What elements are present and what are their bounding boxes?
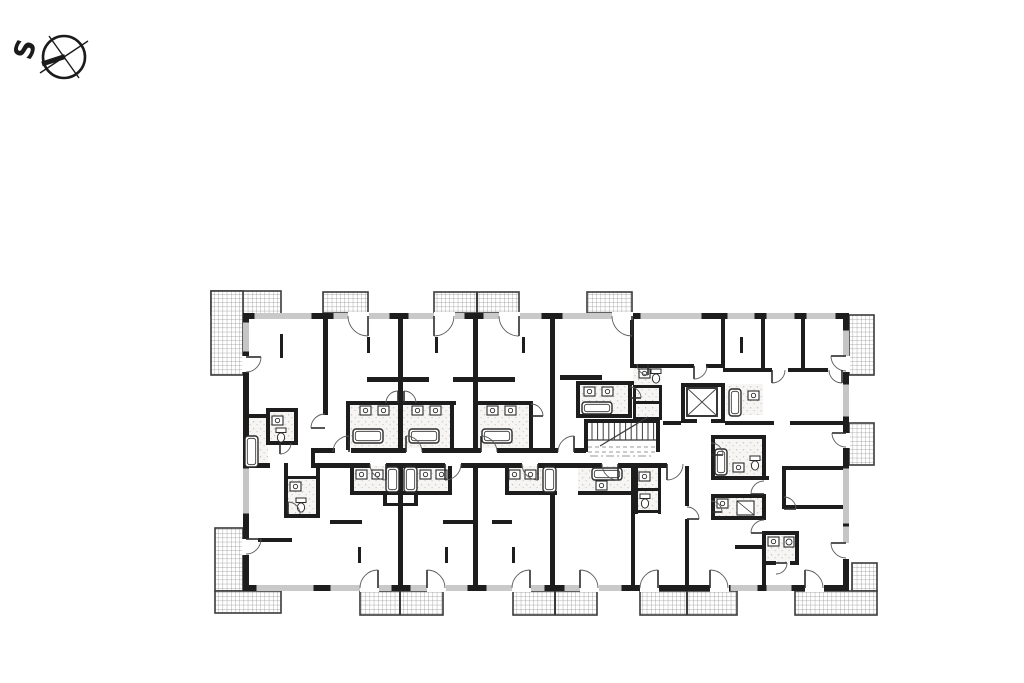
toilet	[276, 428, 286, 442]
sink	[596, 481, 607, 490]
door-swing	[772, 370, 785, 383]
wall	[422, 448, 481, 453]
sink	[748, 391, 759, 400]
wall	[294, 408, 298, 445]
wall	[725, 421, 774, 425]
wall	[266, 408, 298, 412]
wall	[316, 466, 320, 516]
door-swing	[667, 464, 683, 480]
door-swing	[829, 370, 842, 383]
balcony	[849, 423, 874, 465]
window	[728, 585, 760, 591]
sink	[509, 470, 520, 479]
bathtub	[386, 467, 399, 492]
sink	[584, 387, 595, 396]
wall	[721, 319, 725, 368]
wall	[721, 383, 725, 423]
sink	[360, 406, 371, 415]
wall	[505, 466, 509, 494]
bathtub	[404, 467, 417, 492]
shower	[737, 501, 754, 515]
wall	[473, 319, 478, 450]
window	[638, 313, 704, 319]
window	[243, 320, 249, 354]
bathtub	[482, 429, 512, 443]
wall	[711, 516, 766, 520]
window	[254, 585, 316, 591]
wall	[795, 531, 799, 565]
wall	[350, 466, 354, 494]
wall	[313, 463, 370, 468]
sink	[430, 406, 441, 415]
wall	[383, 491, 387, 505]
wall	[681, 383, 725, 387]
sink	[505, 406, 516, 415]
window	[764, 313, 797, 319]
wall	[461, 463, 522, 468]
door-swing	[558, 436, 574, 452]
bathtub	[543, 467, 556, 492]
balcony	[852, 563, 877, 591]
wall	[762, 531, 799, 535]
wall	[258, 538, 292, 542]
floor-plan-svg	[0, 0, 1024, 683]
wall	[659, 385, 662, 420]
sink	[639, 472, 650, 481]
wall	[762, 494, 766, 518]
door-swing	[311, 414, 325, 428]
floor-plan: S	[0, 0, 1024, 683]
sink	[602, 387, 613, 396]
bathtub	[353, 429, 383, 443]
bathtub	[729, 389, 741, 416]
wall	[383, 503, 418, 506]
door-swing	[687, 507, 699, 519]
sink	[525, 470, 536, 479]
elevator	[687, 388, 717, 416]
wall	[323, 319, 328, 415]
wall	[681, 383, 685, 423]
bathtub	[715, 449, 727, 475]
compass-icon	[40, 36, 88, 78]
sink	[356, 470, 367, 479]
window	[804, 313, 838, 319]
wall	[735, 545, 765, 549]
bathtub	[245, 436, 258, 467]
wall	[576, 381, 580, 418]
toilet	[640, 494, 650, 508]
wall	[284, 514, 320, 518]
wall	[351, 448, 406, 453]
wall	[346, 401, 404, 405]
wall	[762, 437, 766, 480]
sink	[487, 406, 498, 415]
sink	[290, 482, 301, 491]
wall	[414, 491, 418, 505]
washing-machine	[784, 537, 794, 547]
wall	[788, 368, 828, 372]
wall	[711, 476, 769, 480]
balcony	[215, 528, 243, 591]
wall	[706, 364, 725, 368]
window	[843, 382, 849, 419]
window	[725, 313, 757, 319]
wall	[284, 476, 320, 479]
balcony	[323, 292, 368, 313]
wall	[631, 466, 635, 585]
window	[843, 466, 849, 526]
bathtub	[409, 429, 439, 443]
toilet	[750, 456, 760, 470]
wall	[497, 448, 558, 453]
wall	[584, 419, 660, 423]
wall	[443, 520, 478, 524]
sink	[733, 463, 744, 472]
wall	[400, 401, 456, 405]
door-swing	[694, 366, 707, 379]
wall	[685, 466, 689, 506]
window	[243, 466, 249, 516]
balcony	[211, 291, 243, 375]
wall	[630, 364, 694, 368]
wall	[801, 319, 805, 372]
wall	[633, 385, 636, 420]
wall	[475, 401, 533, 405]
window	[252, 313, 314, 319]
wall	[367, 377, 429, 382]
wall	[723, 368, 772, 372]
wall	[450, 401, 454, 450]
sink	[768, 537, 779, 546]
wall	[782, 466, 786, 509]
window	[764, 585, 794, 591]
wall	[656, 419, 660, 452]
door-swing	[776, 563, 787, 574]
wall	[576, 381, 634, 385]
balcony	[795, 591, 877, 615]
wall	[633, 401, 662, 404]
wall	[633, 385, 662, 388]
wall	[663, 421, 681, 425]
balcony	[215, 591, 281, 613]
wall	[330, 520, 362, 524]
balcony	[849, 315, 874, 375]
wall	[578, 491, 632, 495]
wall	[313, 448, 335, 453]
wall	[574, 448, 586, 453]
bathtub	[582, 402, 612, 414]
wall	[635, 488, 661, 491]
balcony	[360, 591, 443, 615]
wall	[584, 419, 588, 452]
door-swing	[751, 481, 764, 494]
sink	[420, 470, 431, 479]
wall	[266, 408, 270, 445]
wall	[529, 401, 533, 450]
sink	[272, 416, 283, 425]
toilet	[651, 369, 661, 383]
toilet	[296, 498, 306, 512]
wall	[453, 377, 515, 382]
wall	[790, 421, 847, 425]
wall	[635, 510, 661, 513]
wall	[560, 375, 602, 380]
wall	[473, 466, 478, 585]
sink	[378, 406, 389, 415]
wall	[550, 319, 555, 450]
wall	[398, 319, 403, 450]
balcony	[587, 292, 632, 313]
wall	[784, 466, 844, 470]
wall	[762, 533, 766, 591]
wall	[492, 520, 512, 524]
wall	[761, 319, 765, 372]
balcony	[640, 591, 737, 615]
wall	[243, 414, 270, 418]
wall	[711, 435, 766, 439]
wall	[685, 519, 689, 585]
sink	[412, 406, 423, 415]
